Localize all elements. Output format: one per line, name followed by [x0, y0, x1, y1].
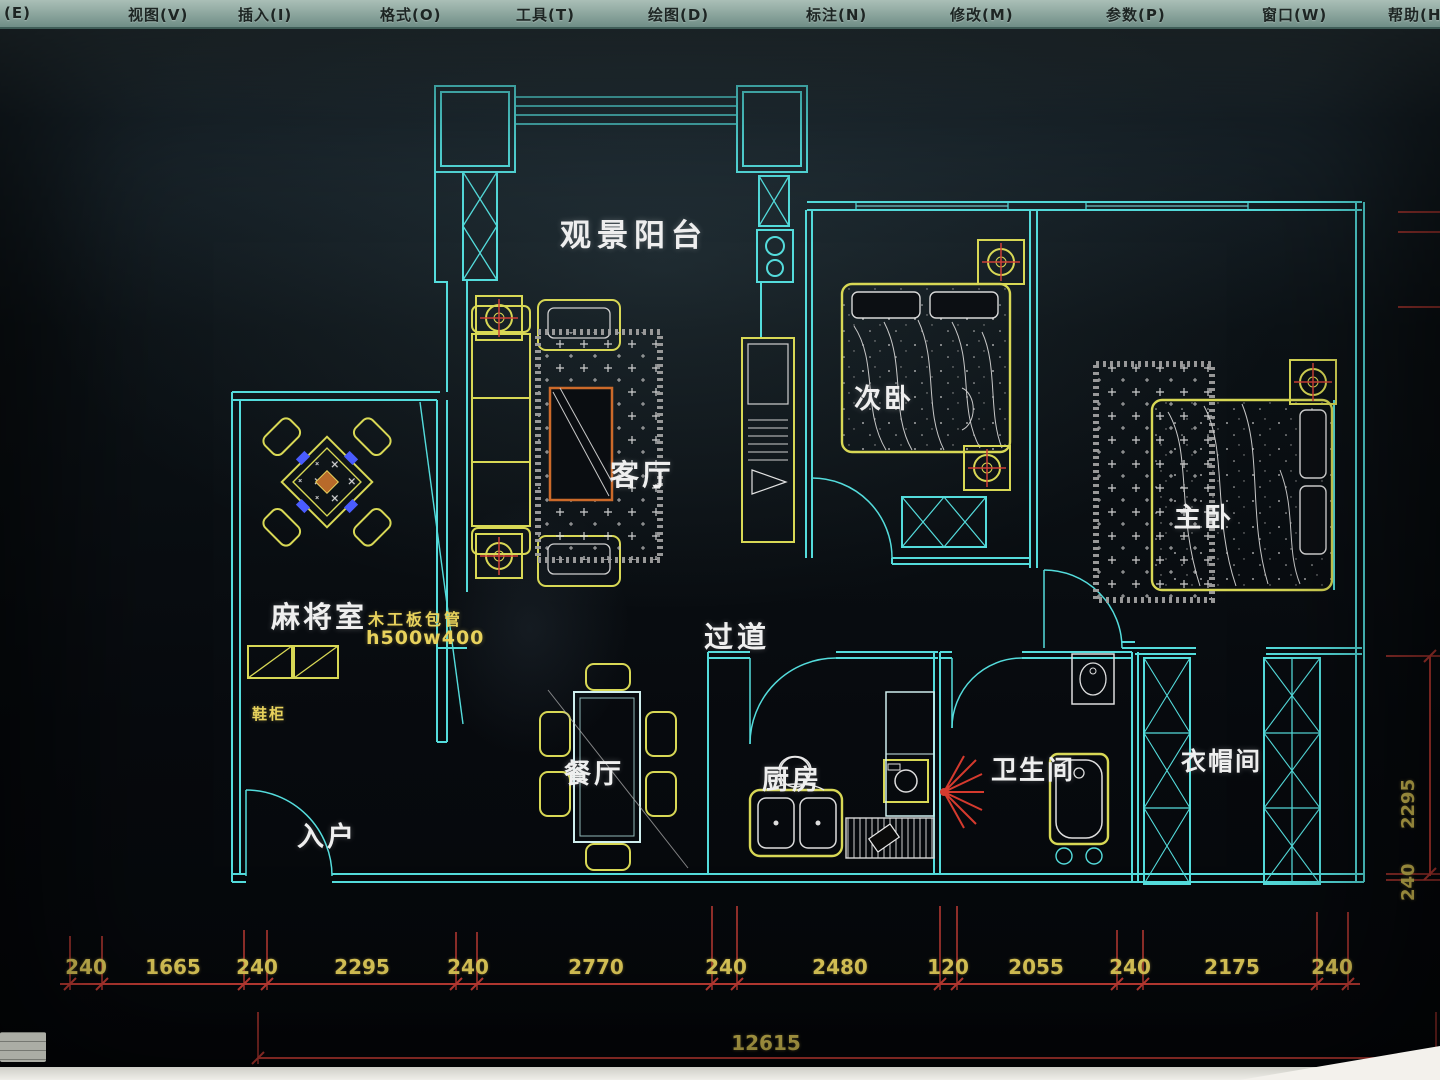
- room-label-second-bedroom: 次卧: [854, 377, 914, 416]
- dim-label-bottom-0: 240: [65, 955, 107, 979]
- room-label-hallway: 过道: [704, 614, 770, 656]
- monitor-bezel: [0, 1067, 1440, 1080]
- dim-label-bottom-12: 240: [1311, 955, 1353, 979]
- menu-item-dimension[interactable]: 标注(N): [806, 4, 867, 25]
- dim-label-bottom-3: 2295: [334, 955, 390, 979]
- menu-item-help[interactable]: 帮助(H): [1388, 4, 1440, 25]
- menu-item-parametric[interactable]: 参数(P): [1106, 4, 1166, 25]
- dim-label-bottom-1: 1665: [145, 955, 201, 979]
- room-label-balcony: 观景阳台: [560, 210, 708, 255]
- floorplan-drawing: [0, 0, 1440, 1080]
- dim-label-bottom-9: 2055: [1008, 955, 1064, 979]
- dim-label-bottom-2: 240: [236, 955, 278, 979]
- menu-item-modify[interactable]: 修改(M): [950, 4, 1014, 25]
- menu-item-window[interactable]: 窗口(W): [1262, 4, 1327, 25]
- dim-label-right-1: 240: [1398, 863, 1419, 901]
- menu-item-edit[interactable]: (E): [4, 4, 31, 22]
- dim-label-bottom-10: 240: [1109, 955, 1151, 979]
- dim-label-bottom-8: 120: [927, 955, 969, 979]
- room-label-kitchen: 厨房: [762, 758, 822, 797]
- room-label-dining-room: 餐厅: [564, 752, 624, 791]
- room-label-entry: 入户: [297, 815, 357, 854]
- room-label-master-bedroom: 主卧: [1174, 496, 1234, 535]
- room-label-bathroom: 卫生间: [991, 750, 1075, 787]
- menu-item-draw[interactable]: 绘图(D): [648, 4, 709, 25]
- dim-label-bottom-7: 2480: [812, 955, 868, 979]
- menu-item-insert[interactable]: 插入(I): [238, 4, 292, 25]
- menu-bar: (E) 视图(V) 插入(I) 格式(O) 工具(T) 绘图(D) 标注(N) …: [0, 0, 1440, 29]
- menu-item-view[interactable]: 视图(V): [128, 4, 188, 25]
- dim-label-bottom-5: 2770: [568, 955, 624, 979]
- cad-application-window: (E) 视图(V) 插入(I) 格式(O) 工具(T) 绘图(D) 标注(N) …: [0, 0, 1440, 1080]
- room-label-mahjong-room: 麻将室: [271, 594, 367, 636]
- dim-label-bottom-6: 240: [705, 955, 747, 979]
- room-label-cloakroom: 衣帽间: [1181, 742, 1262, 778]
- dim-label-right-0: 2295: [1398, 779, 1419, 829]
- annotation-shoe-cabinet: 鞋柜: [252, 703, 286, 724]
- menu-item-format[interactable]: 格式(O): [380, 4, 441, 25]
- cad-viewport[interactable]: 观景阳台 客厅 过道 麻将室 入户 餐厅 厨房 卫生间 衣帽间 次卧 主卧 木工…: [0, 29, 1440, 1080]
- menu-item-tools[interactable]: 工具(T): [516, 4, 575, 25]
- annotation-duct-size: h500w400: [366, 627, 484, 649]
- dim-label-total: 12615: [731, 1031, 801, 1055]
- dim-label-bottom-4: 240: [447, 955, 489, 979]
- dim-label-bottom-11: 2175: [1204, 955, 1260, 979]
- desk-note-paper: [0, 1032, 46, 1062]
- room-label-living-room: 客厅: [610, 452, 674, 494]
